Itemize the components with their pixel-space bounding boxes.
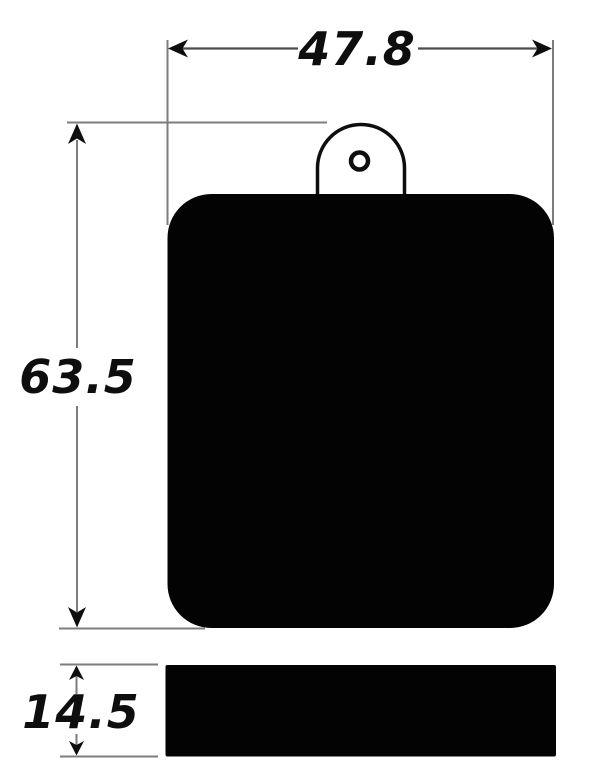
width-dimension-label: 47.8 — [297, 22, 416, 76]
pad-front-view — [168, 125, 555, 629]
pad-side-view — [166, 665, 557, 757]
thickness-dimension-label: 14.5 — [22, 685, 140, 739]
technical-drawing: 47.8 63.5 14 — [0, 0, 601, 784]
height-dimension-label: 63.5 — [19, 350, 137, 404]
dimension-diagram: 47.8 63.5 14 — [0, 0, 601, 784]
pad-thickness-bar — [166, 665, 557, 757]
tab-hole — [351, 153, 368, 170]
thickness-dimension: 14.5 — [22, 665, 158, 757]
pad-body — [168, 194, 555, 628]
